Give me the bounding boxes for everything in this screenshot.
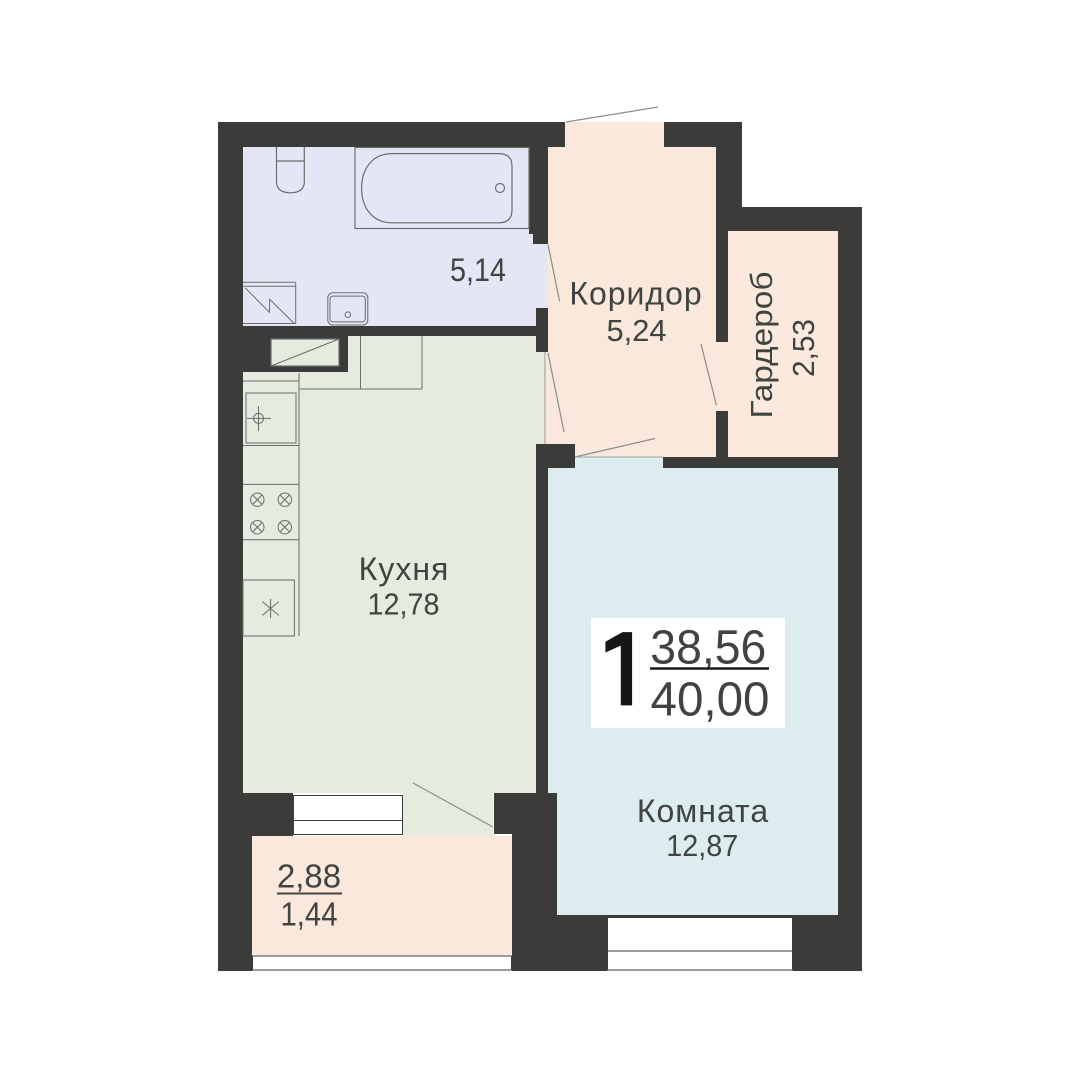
svg-text:40,00: 40,00 [651, 674, 770, 727]
svg-text:38,56: 38,56 [650, 622, 766, 675]
svg-text:Гардероб: Гардероб [744, 272, 779, 419]
svg-text:12,87: 12,87 [666, 828, 738, 863]
svg-text:2,88: 2,88 [277, 858, 341, 895]
svg-text:Комната: Комната [637, 793, 769, 829]
svg-text:2,53: 2,53 [786, 319, 821, 377]
svg-text:5,24: 5,24 [607, 313, 667, 348]
svg-text:Коридор: Коридор [569, 276, 702, 312]
svg-text:1,44: 1,44 [281, 896, 338, 933]
svg-text:Кухня: Кухня [359, 551, 450, 587]
svg-text:12,78: 12,78 [368, 587, 440, 622]
svg-text:5,14: 5,14 [450, 252, 506, 288]
